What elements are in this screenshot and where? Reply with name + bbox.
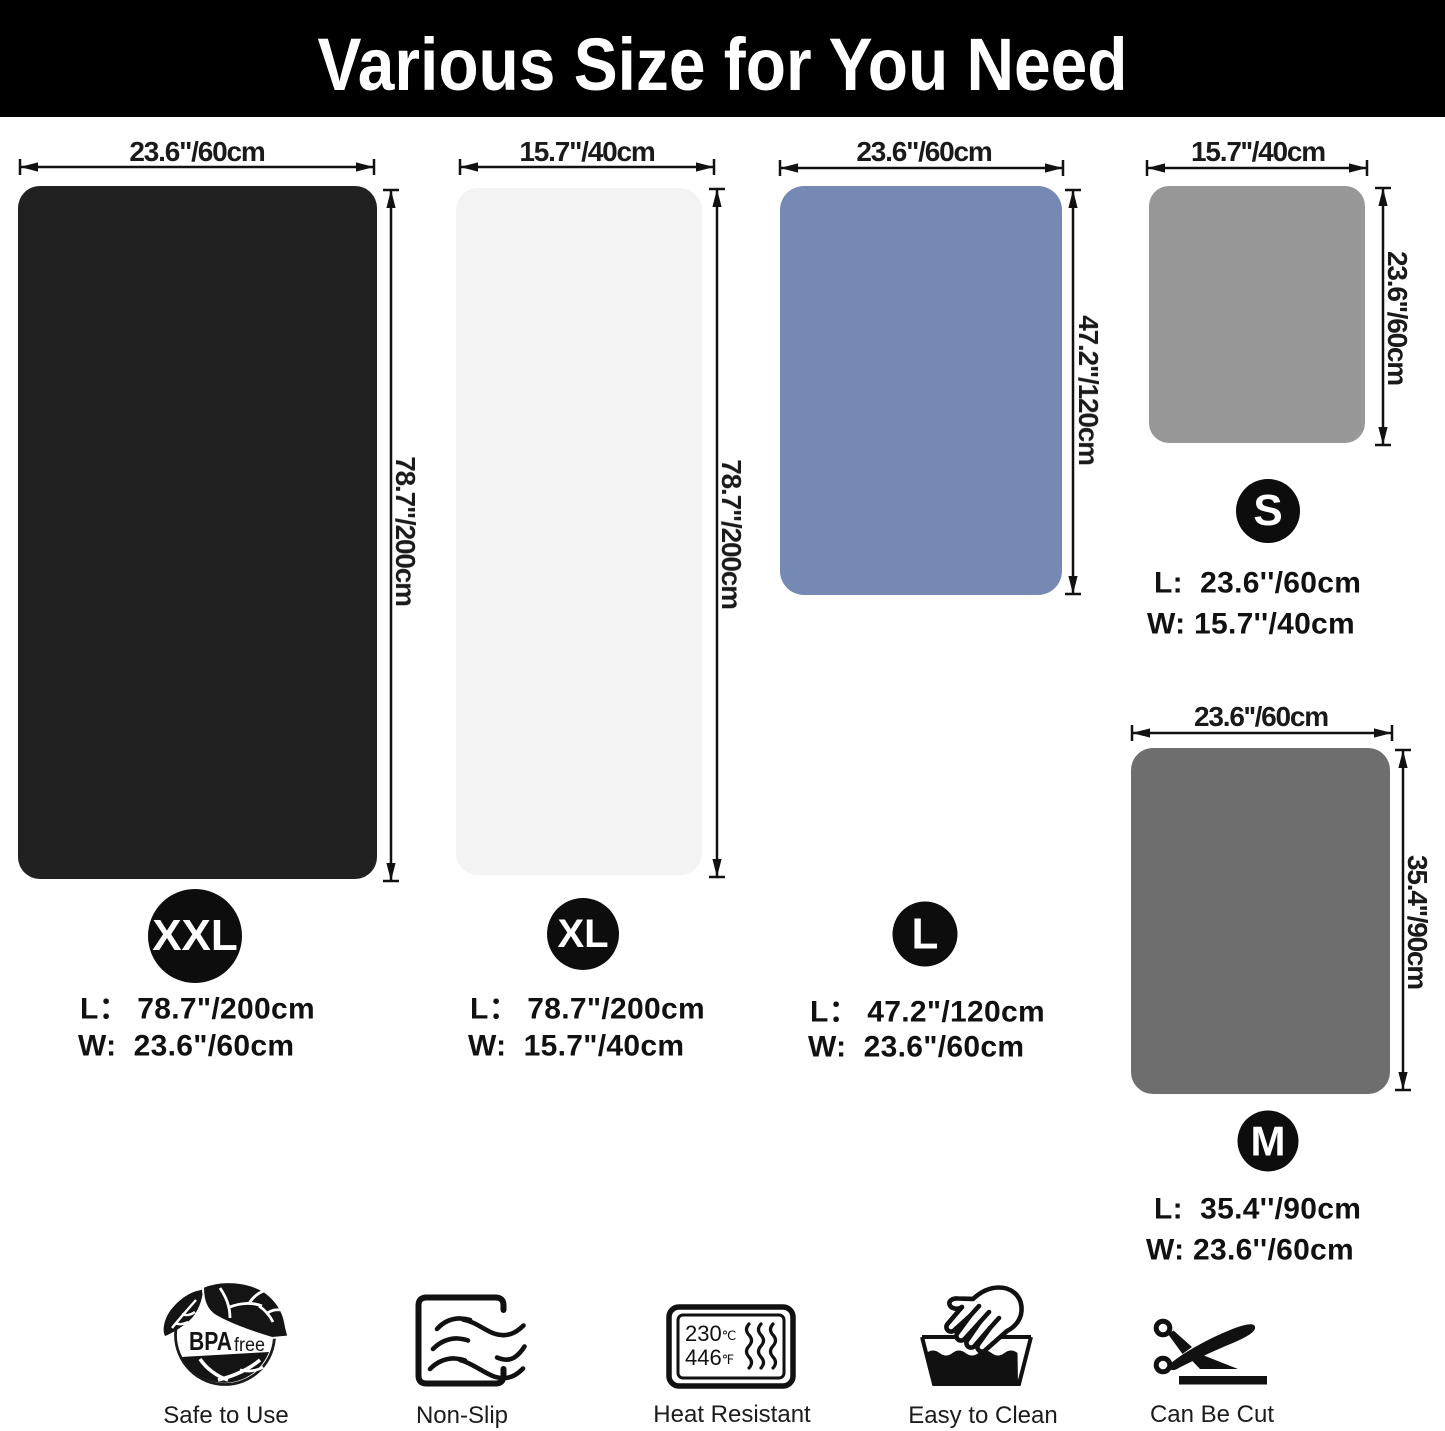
svg-text:free: free — [234, 1335, 265, 1356]
svg-text:BPA: BPA — [189, 1326, 232, 1356]
